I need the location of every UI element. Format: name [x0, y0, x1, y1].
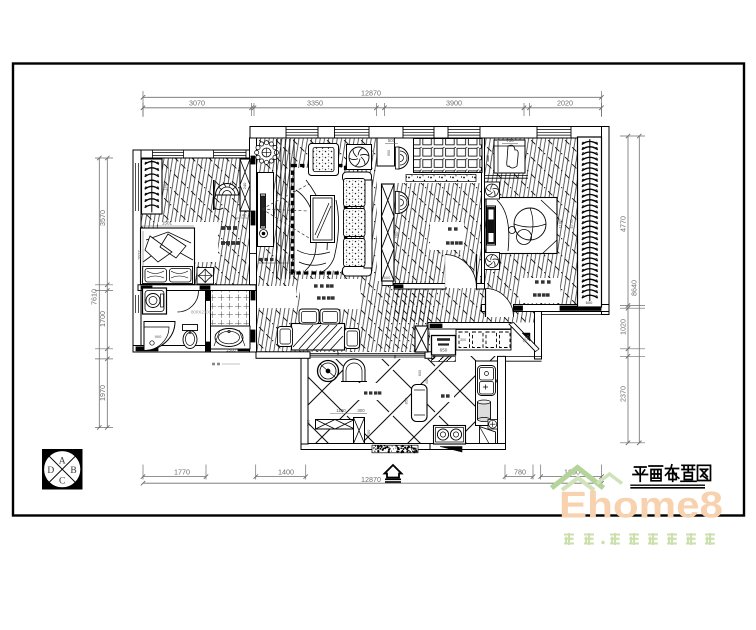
svg-text:1970: 1970	[98, 385, 107, 401]
svg-text:A: A	[59, 457, 66, 467]
svg-text:300: 300	[357, 408, 365, 413]
svg-text:12870: 12870	[361, 89, 381, 98]
svg-text:3570: 3570	[98, 210, 107, 226]
svg-text:D: D	[47, 466, 54, 476]
svg-text:1100: 1100	[336, 408, 346, 413]
svg-text:Ehome8: Ehome8	[559, 485, 723, 526]
svg-text:240: 240	[242, 182, 247, 189]
svg-text:200: 200	[394, 231, 399, 239]
svg-text:4770: 4770	[569, 219, 574, 229]
svg-text:1770: 1770	[174, 467, 190, 476]
svg-text:900: 900	[387, 150, 391, 156]
svg-text:850: 850	[404, 397, 409, 404]
svg-text:600: 600	[384, 275, 391, 280]
svg-text:3900: 3900	[446, 99, 462, 108]
svg-text:500: 500	[486, 155, 490, 161]
svg-text:1700: 1700	[98, 311, 107, 327]
svg-text:2020: 2020	[557, 99, 573, 108]
svg-text:12870: 12870	[361, 475, 381, 484]
svg-text:1100: 1100	[558, 219, 563, 229]
svg-text:650: 650	[440, 348, 448, 353]
svg-text:300: 300	[306, 419, 311, 426]
svg-text:4770: 4770	[618, 216, 627, 232]
svg-text:1400: 1400	[278, 467, 294, 476]
svg-text:7610: 7610	[90, 289, 99, 305]
svg-text:750: 750	[506, 138, 514, 143]
svg-text:300: 300	[460, 338, 466, 342]
svg-text:C: C	[59, 477, 65, 487]
svg-text:2027: 2027	[137, 250, 142, 260]
svg-text:1501: 1501	[162, 221, 173, 226]
svg-text:750: 750	[366, 429, 371, 436]
svg-text:1601: 1601	[162, 181, 167, 191]
svg-text:600: 600	[586, 300, 593, 305]
svg-text:3350: 3350	[307, 99, 323, 108]
svg-text:400: 400	[425, 378, 429, 384]
svg-text:8640: 8640	[630, 280, 639, 296]
svg-text:B: B	[70, 466, 76, 476]
svg-text:3070: 3070	[189, 99, 205, 108]
svg-text:780: 780	[514, 467, 526, 476]
svg-text:500: 500	[388, 138, 396, 143]
svg-text:900: 900	[155, 334, 162, 339]
svg-text:600: 600	[418, 370, 422, 376]
svg-text:800X2300: 800X2300	[191, 310, 212, 315]
svg-text:2370: 2370	[618, 386, 627, 402]
svg-text:1500: 1500	[226, 348, 236, 353]
svg-text:140: 140	[240, 213, 247, 218]
svg-text:1020: 1020	[618, 319, 627, 335]
